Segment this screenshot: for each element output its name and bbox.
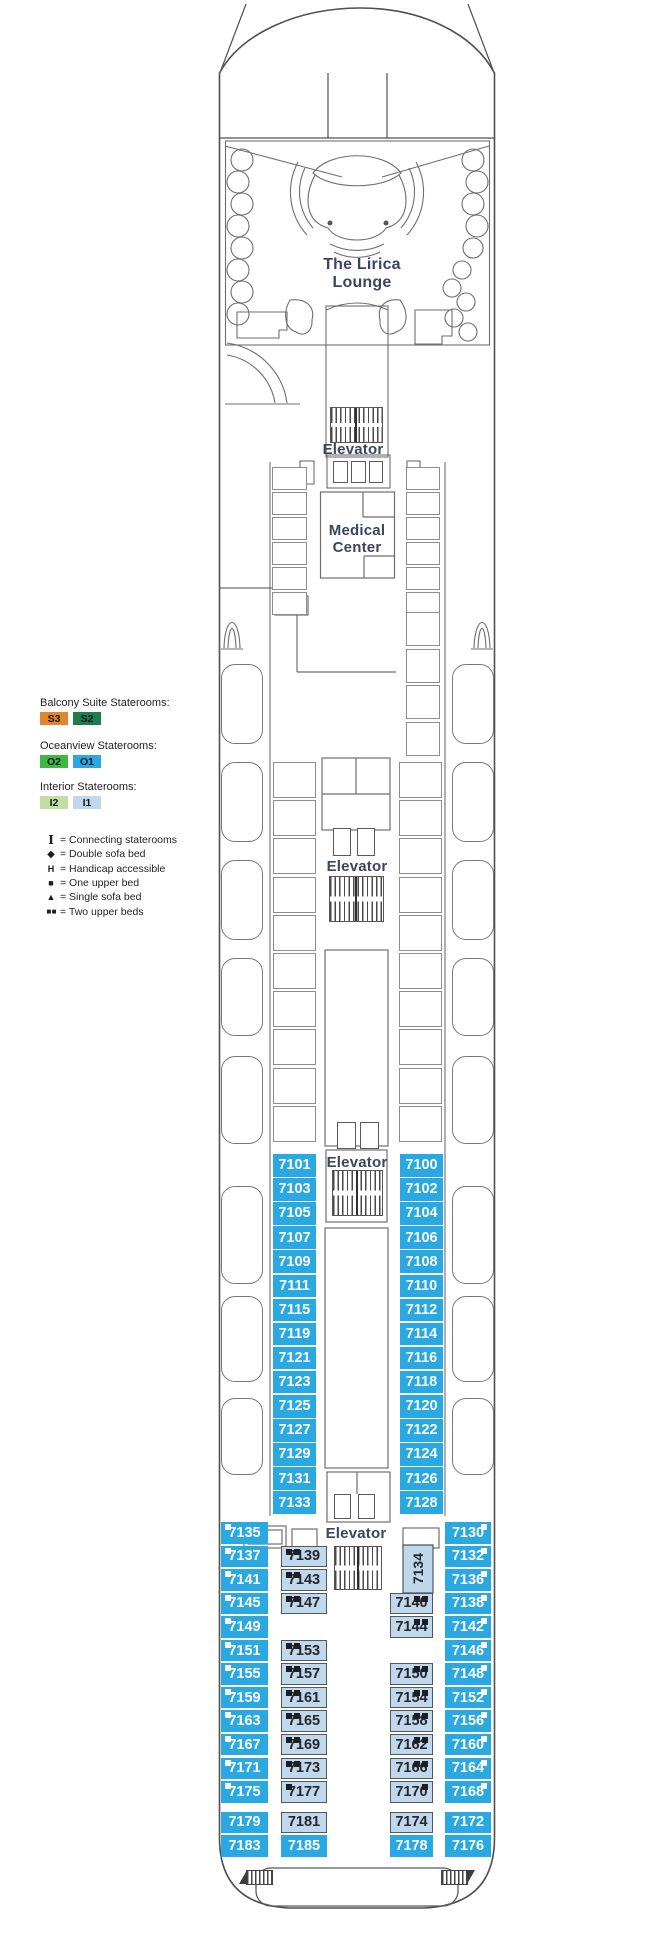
cabin-7115: 7115 [273,1299,316,1322]
service-room [399,953,442,989]
lifeboat [221,860,263,940]
service-room [406,467,440,490]
cabin-7124: 7124 [400,1443,443,1466]
cabin-7111: 7111 [273,1275,316,1298]
cabin-7166: 7166 [390,1758,433,1780]
legend-chip-s3: S3 [40,712,68,725]
legend-symbol-connecting: I = Connecting staterooms [44,833,177,847]
lifeboat [221,1296,263,1382]
cabin-7100: 7100 [400,1154,443,1177]
cabin-7130: 7130 [445,1522,491,1544]
service-room [406,567,440,590]
service-room [406,649,440,683]
stern-stairs-right [441,1870,468,1885]
cabin-7116: 7116 [400,1347,443,1370]
cabin-7150: 7150 [390,1663,433,1685]
elevator-label-1: Elevator [303,441,403,458]
cabin-7142: 7142 [445,1616,491,1638]
lifeboat [221,1398,263,1475]
service-room [406,542,440,565]
service-room [272,567,307,590]
cabin-7114: 7114 [400,1323,443,1346]
cabin-7172: 7172 [445,1812,491,1834]
cabin-7118: 7118 [400,1371,443,1394]
stairs-icon-1 [330,407,383,443]
service-room [273,991,316,1027]
legend-oceanview: Oceanview Staterooms: O2 O1 [40,740,157,768]
davit-arches [221,623,493,650]
cabin-7148: 7148 [445,1663,491,1685]
service-room [399,991,442,1027]
cabin-7119: 7119 [273,1323,316,1346]
cabin-7158: 7158 [390,1710,433,1732]
service-room [399,915,442,951]
one-upper-bed-icon: ■ [44,878,58,888]
cabin-7121: 7121 [273,1347,316,1370]
service-room [399,1068,442,1104]
cabin-7127: 7127 [273,1419,316,1442]
elevator-car [334,1494,351,1519]
cabin-7107: 7107 [273,1226,316,1249]
legend-symbol-one-upper: ■ = One upper bed [44,876,177,890]
cabin-7163: 7163 [221,1710,268,1732]
elevator-label-4: Elevator [306,1525,406,1542]
double-sofa-bed-icon: ◆ [44,849,58,860]
cabin-7178: 7178 [390,1835,433,1857]
elevator-car [351,461,366,483]
lifeboat [221,1186,263,1284]
lifeboat [221,958,263,1036]
handicap-icon: H [44,864,58,874]
elevator-car [337,1122,356,1149]
legend-symbol-handicap: H = Handicap accessible [44,862,177,876]
lifeboat [452,1296,494,1382]
cabin-7145: 7145 [221,1593,268,1615]
lifeboat [221,762,263,842]
lifeboat [452,1186,494,1284]
lifeboat [452,1398,494,1475]
legend-chip-i1: I1 [73,796,101,809]
service-room [272,467,307,490]
legend-symbol-double-sofa: ◆ = Double sofa bed [44,847,177,861]
service-room [273,838,316,874]
service-room [399,877,442,913]
stairs-icon-2 [329,876,384,922]
cabin-7129: 7129 [273,1443,316,1466]
lifeboat [221,1056,263,1144]
cabin-7101: 7101 [273,1154,316,1177]
legend-title: Interior Staterooms: [40,781,137,793]
stairs-icon-4 [334,1546,382,1590]
cabin-7171: 7171 [221,1758,268,1780]
cabin-7131: 7131 [273,1467,316,1490]
cabin-7102: 7102 [400,1178,443,1201]
cabin-7152: 7152 [445,1687,491,1709]
service-room [406,492,440,515]
legend-chip-o1: O1 [73,755,101,768]
cabin-7159: 7159 [221,1687,268,1709]
cabin-7146: 7146 [445,1640,491,1662]
legend-chip-o2: O2 [40,755,68,768]
lounge-decor [225,141,490,345]
service-room [406,612,440,646]
cabin-7162: 7162 [390,1734,433,1756]
elevator-car [358,1494,375,1519]
service-room [273,762,316,798]
lifeboat [452,762,494,842]
cabin-7170: 7170 [390,1781,433,1803]
cabin-7149: 7149 [221,1616,268,1638]
service-room [272,542,307,565]
stairs-icon-3 [332,1170,383,1216]
cabin-7155: 7155 [221,1663,268,1685]
legend-symbol-single-sofa: ▲ = Single sofa bed [44,890,177,904]
cabin-7154: 7154 [390,1687,433,1709]
cabin-7179: 7179 [221,1812,268,1834]
service-room [273,953,316,989]
service-room [399,1106,442,1142]
service-room [399,838,442,874]
service-room [273,1106,316,1142]
cabin-7134-label: 7134 [403,1545,433,1593]
cabin-7122: 7122 [400,1419,443,1442]
lifeboat [452,958,494,1036]
cabin-7136: 7136 [445,1569,491,1591]
stern-stairs-left [246,1870,273,1885]
cabin-7133: 7133 [273,1491,316,1514]
cabin-7120: 7120 [400,1395,443,1418]
service-room [399,800,442,836]
cabin-7174: 7174 [390,1812,433,1834]
cabin-7110: 7110 [400,1275,443,1298]
cabin-7141: 7141 [221,1569,268,1591]
single-sofa-bed-icon: ▲ [44,892,58,902]
cabin-7147: 7147 [281,1593,327,1615]
cabin-7104: 7104 [400,1202,443,1225]
legend-balcony-suite: Balcony Suite Staterooms: S3 S2 [40,697,170,725]
service-room [273,1068,316,1104]
cabin-7132: 7132 [445,1546,491,1568]
service-room [273,915,316,951]
service-room [406,517,440,540]
service-room [272,492,307,515]
cabin-7164: 7164 [445,1758,491,1780]
service-room [273,877,316,913]
cabin-7109: 7109 [273,1250,316,1273]
cabin-7151: 7151 [221,1640,268,1662]
cabin-7139: 7139 [281,1546,327,1568]
cabin-7126: 7126 [400,1467,443,1490]
lifeboat [452,664,494,744]
legend-chip-i2: I2 [40,796,68,809]
cabin-7140: 7140 [390,1593,433,1615]
elevator-car [333,461,348,483]
cabin-7106: 7106 [400,1226,443,1249]
cabin-7138: 7138 [445,1593,491,1615]
medical-label: Medical Center [318,522,396,557]
service-room [406,685,440,719]
two-upper-beds-icon: ■ ■ [44,907,58,916]
cabin-7177: 7177 [281,1781,327,1803]
legend-symbols: I = Connecting staterooms ◆ = Double sof… [44,833,177,919]
cabin-7160: 7160 [445,1734,491,1756]
service-room [399,1029,442,1065]
cabin-7112: 7112 [400,1299,443,1322]
cabin-7105: 7105 [273,1202,316,1225]
lifeboat [452,1056,494,1144]
legend-interior: Interior Staterooms: I2 I1 [40,781,137,809]
lifeboat [221,664,263,744]
cabin-7165: 7165 [281,1710,327,1732]
service-room [272,517,307,540]
medical-walls [220,492,397,672]
lounge-label: The Lirica Lounge [302,256,422,293]
service-room [273,800,316,836]
cabin-7175: 7175 [221,1781,268,1803]
cabin-7185: 7185 [281,1835,327,1857]
cabin-7108: 7108 [400,1250,443,1273]
service-room [273,1029,316,1065]
cabin-7144: 7144 [390,1616,433,1638]
cabin-7153: 7153 [281,1640,327,1662]
legend-title: Balcony Suite Staterooms: [40,697,170,709]
cabin-7168: 7168 [445,1781,491,1803]
service-room [272,592,307,615]
cabin-7181: 7181 [281,1812,327,1834]
cabin-7169: 7169 [281,1734,327,1756]
legend-chip-s2: S2 [73,712,101,725]
elevator-car [360,1122,379,1149]
cabin-7137: 7137 [221,1546,268,1568]
elevator-label-3: Elevator [307,1154,407,1171]
cabin-7157: 7157 [281,1663,327,1685]
legend-symbol-two-upper: ■ ■ = Two upper beds [44,904,177,918]
cabin-7143: 7143 [281,1569,327,1591]
connecting-icon: I [44,833,58,847]
cabin-7183: 7183 [221,1835,268,1857]
cabin-7135: 7135 [221,1522,268,1544]
service-room [399,762,442,798]
cabin-7173: 7173 [281,1758,327,1780]
lifeboat [452,860,494,940]
elevator-label-2: Elevator [307,858,407,875]
cabin-7103: 7103 [273,1178,316,1201]
cabin-7123: 7123 [273,1371,316,1394]
cabin-7161: 7161 [281,1687,327,1709]
cabin-7167: 7167 [221,1734,268,1756]
cabin-7125: 7125 [273,1395,316,1418]
legend-title: Oceanview Staterooms: [40,740,157,752]
elevator-car [333,828,351,856]
cabin-7156: 7156 [445,1710,491,1732]
cabin-7128: 7128 [400,1491,443,1514]
elevator-car [369,461,383,483]
elevator-car [357,828,375,856]
cabin-7176: 7176 [445,1835,491,1857]
deck-plan: The Lirica Lounge Elevator Medical Cente… [0,0,650,1950]
service-room [406,722,440,756]
